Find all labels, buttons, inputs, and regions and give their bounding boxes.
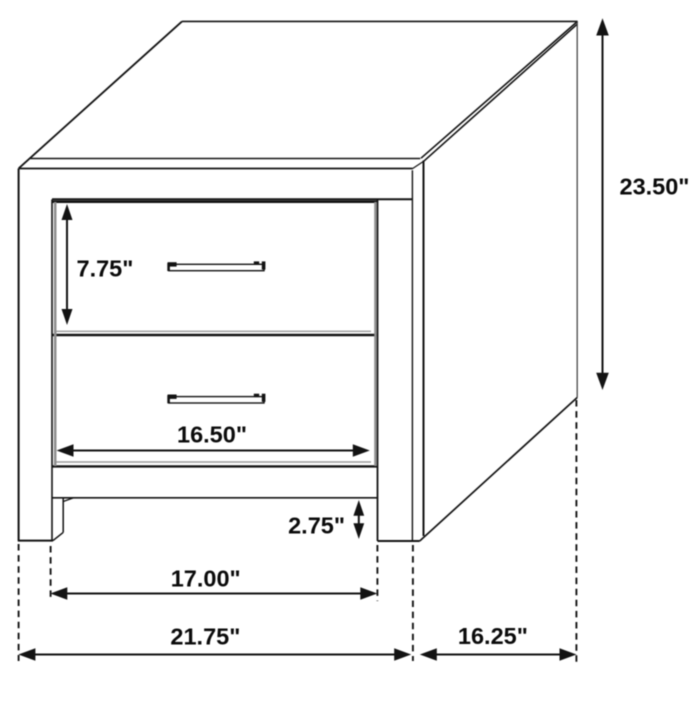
svg-text:17.00": 17.00"	[171, 565, 241, 591]
svg-text:2.75": 2.75"	[288, 512, 345, 538]
svg-text:7.75": 7.75"	[77, 256, 134, 282]
svg-text:21.75": 21.75"	[170, 624, 240, 650]
svg-text:16.50": 16.50"	[177, 422, 247, 448]
svg-text:16.25": 16.25"	[458, 623, 528, 649]
svg-text:23.50": 23.50"	[620, 174, 690, 200]
